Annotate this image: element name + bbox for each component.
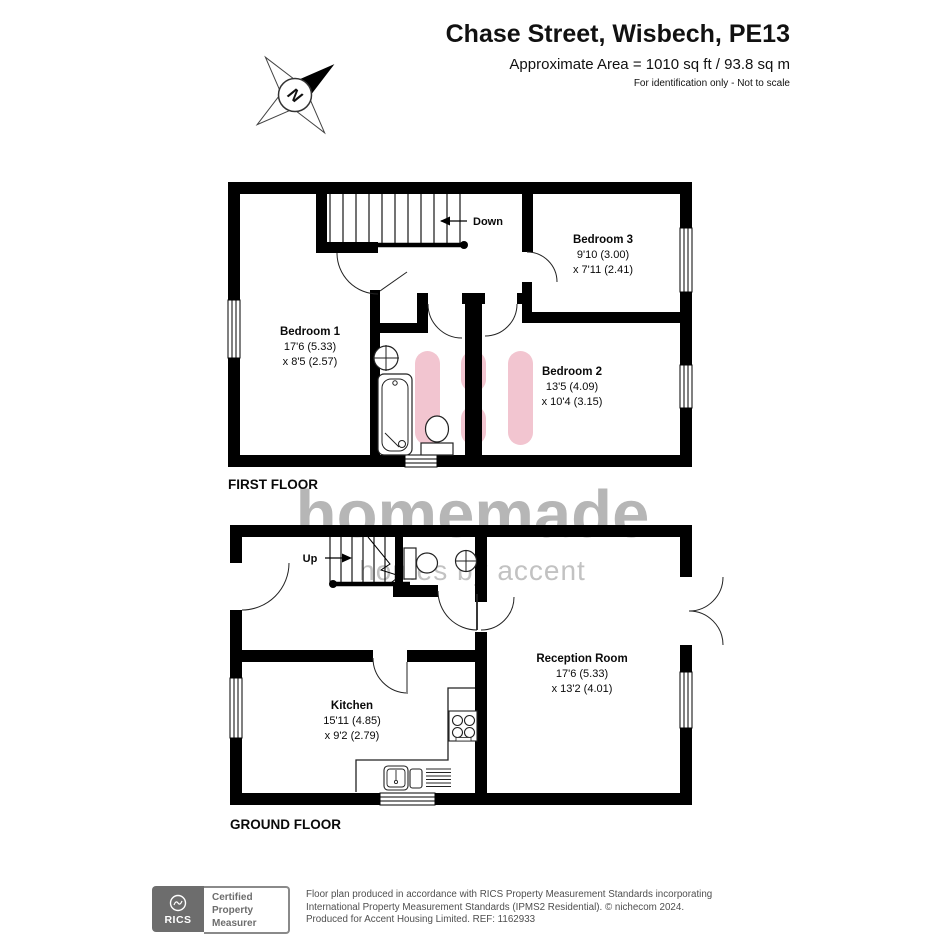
room-dim: 15'11 (4.85)	[323, 715, 381, 727]
up-label: Up	[303, 553, 318, 565]
room-name: Bedroom 1	[280, 326, 341, 338]
bedroom3-door-arc	[527, 252, 557, 282]
window	[405, 454, 437, 469]
wc-door-arc	[438, 591, 477, 630]
hob-icon	[449, 711, 477, 741]
rics-lion-icon	[168, 893, 188, 913]
french-door-arc	[689, 577, 723, 611]
down-label: Down	[473, 216, 503, 228]
bedroom2-door-arc	[485, 304, 517, 336]
first-floor-plan: Down	[227, 182, 694, 492]
sink-icon	[455, 550, 477, 572]
room-label-bedroom2: Bedroom 2 13'5 (4.09) x 10'4 (3.15)	[542, 366, 603, 408]
floorplan-drawing: N	[0, 0, 945, 945]
first-floor-caption: FIRST FLOOR	[228, 477, 318, 492]
room-label-bedroom3: Bedroom 3 9'10 (3.00) x 7'11 (2.41)	[573, 234, 633, 276]
footer: RICS Certified Property Measurer Floor p…	[152, 886, 712, 934]
bathroom-door-arc	[428, 304, 462, 338]
window	[679, 672, 694, 728]
window	[227, 300, 242, 358]
footer-disclaimer: Floor plan produced in accordance with R…	[306, 886, 712, 927]
front-door-opening	[229, 563, 243, 610]
room-dim: x 10'4 (3.15)	[542, 396, 603, 408]
bathtub-icon	[378, 374, 412, 455]
room-dim: x 9'2 (2.79)	[325, 730, 380, 742]
cupboard-door-leaf	[380, 272, 407, 291]
window	[679, 365, 694, 408]
cert-line: Property	[212, 904, 288, 917]
room-dim: 13'5 (4.09)	[546, 381, 598, 393]
bathroom-fixtures	[373, 345, 453, 455]
footer-line: Produced for Accent Housing Limited. REF…	[306, 914, 712, 927]
up-arrow-icon	[325, 554, 352, 563]
rics-wordmark: RICS	[164, 914, 191, 926]
room-label-bedroom1: Bedroom 1 17'6 (5.33) x 8'5 (2.57)	[280, 326, 341, 368]
rics-logo: RICS	[152, 886, 204, 932]
room-name: Reception Room	[536, 653, 627, 665]
window	[679, 228, 694, 292]
room-label-kitchen: Kitchen 15'11 (4.85) x 9'2 (2.79)	[323, 700, 381, 742]
room-dim: x 13'2 (4.01)	[552, 683, 613, 695]
ground-floor-caption: GROUND FLOOR	[230, 817, 341, 832]
cert-line: Certified	[212, 891, 288, 904]
room-name: Bedroom 3	[573, 234, 633, 246]
floorplan-page: Chase Street, Wisbech, PE13 Approximate …	[0, 0, 945, 945]
bedroom1-door-arc	[337, 253, 378, 294]
compass-north-icon: N	[257, 57, 333, 133]
window	[380, 792, 435, 807]
kitchen-door-arc	[373, 658, 408, 693]
toilet-icon	[404, 548, 438, 579]
room-dim: x 7'11 (2.41)	[573, 264, 633, 276]
certified-property-measurer-label: Certified Property Measurer	[204, 886, 290, 934]
room-dim: x 8'5 (2.57)	[283, 356, 338, 368]
room-dim: 17'6 (5.33)	[284, 341, 336, 353]
wc-fixtures	[404, 548, 477, 579]
rics-certified-badge: RICS Certified Property Measurer	[152, 886, 290, 934]
room-dim: 9'10 (3.00)	[577, 249, 629, 261]
down-arrow-icon	[440, 217, 467, 226]
room-name: Kitchen	[331, 700, 373, 712]
room-dim: 17'6 (5.33)	[556, 668, 608, 680]
french-door-arc	[689, 611, 723, 645]
ground-floor-plan: Up	[229, 525, 724, 832]
cert-line: Measurer	[212, 917, 288, 930]
footer-line: Floor plan produced in accordance with R…	[306, 889, 712, 902]
room-label-reception: Reception Room 17'6 (5.33) x 13'2 (4.01)	[536, 653, 627, 695]
footer-line: International Property Measurement Stand…	[306, 902, 712, 915]
room-name: Bedroom 2	[542, 366, 602, 378]
front-door-arc	[242, 563, 289, 610]
kitchen-sink-icon	[384, 766, 451, 790]
window	[229, 678, 244, 738]
